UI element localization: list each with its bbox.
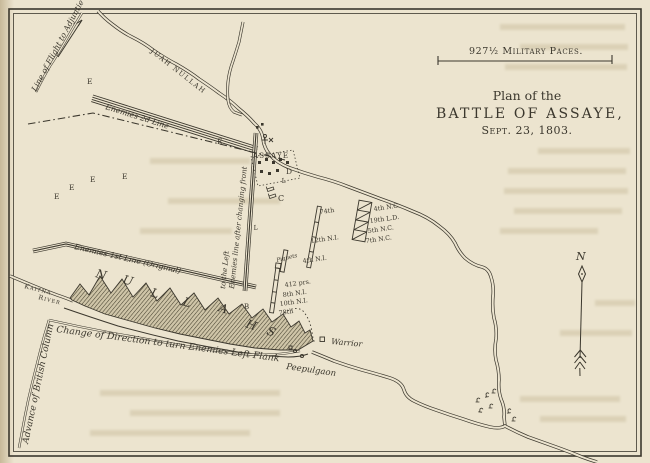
marker-e: E: [54, 192, 59, 201]
marker-e: E: [122, 172, 127, 181]
marker-e: E: [90, 175, 95, 184]
page-gutter-shadow: [0, 0, 14, 463]
scale-label: 927½ Military Paces.: [469, 46, 583, 57]
marker-c: C: [278, 194, 284, 203]
marker-e: E: [69, 183, 74, 192]
marker-b: B: [244, 303, 249, 311]
title-line1: Plan of the: [493, 88, 561, 103]
north-label: N: [575, 250, 586, 263]
marker-e: E: [217, 137, 222, 146]
scanned-map-page: 927½ Military Paces. Plan of the BATTLE …: [0, 0, 650, 463]
title-line2: BATTLE OF ASSAYE,: [436, 106, 624, 122]
title-line3: Sept. 23, 1803.: [481, 124, 572, 137]
marker-d: D: [286, 167, 292, 176]
assaye-label: ASSAYE: [252, 152, 289, 160]
marker-e: E: [87, 77, 92, 86]
